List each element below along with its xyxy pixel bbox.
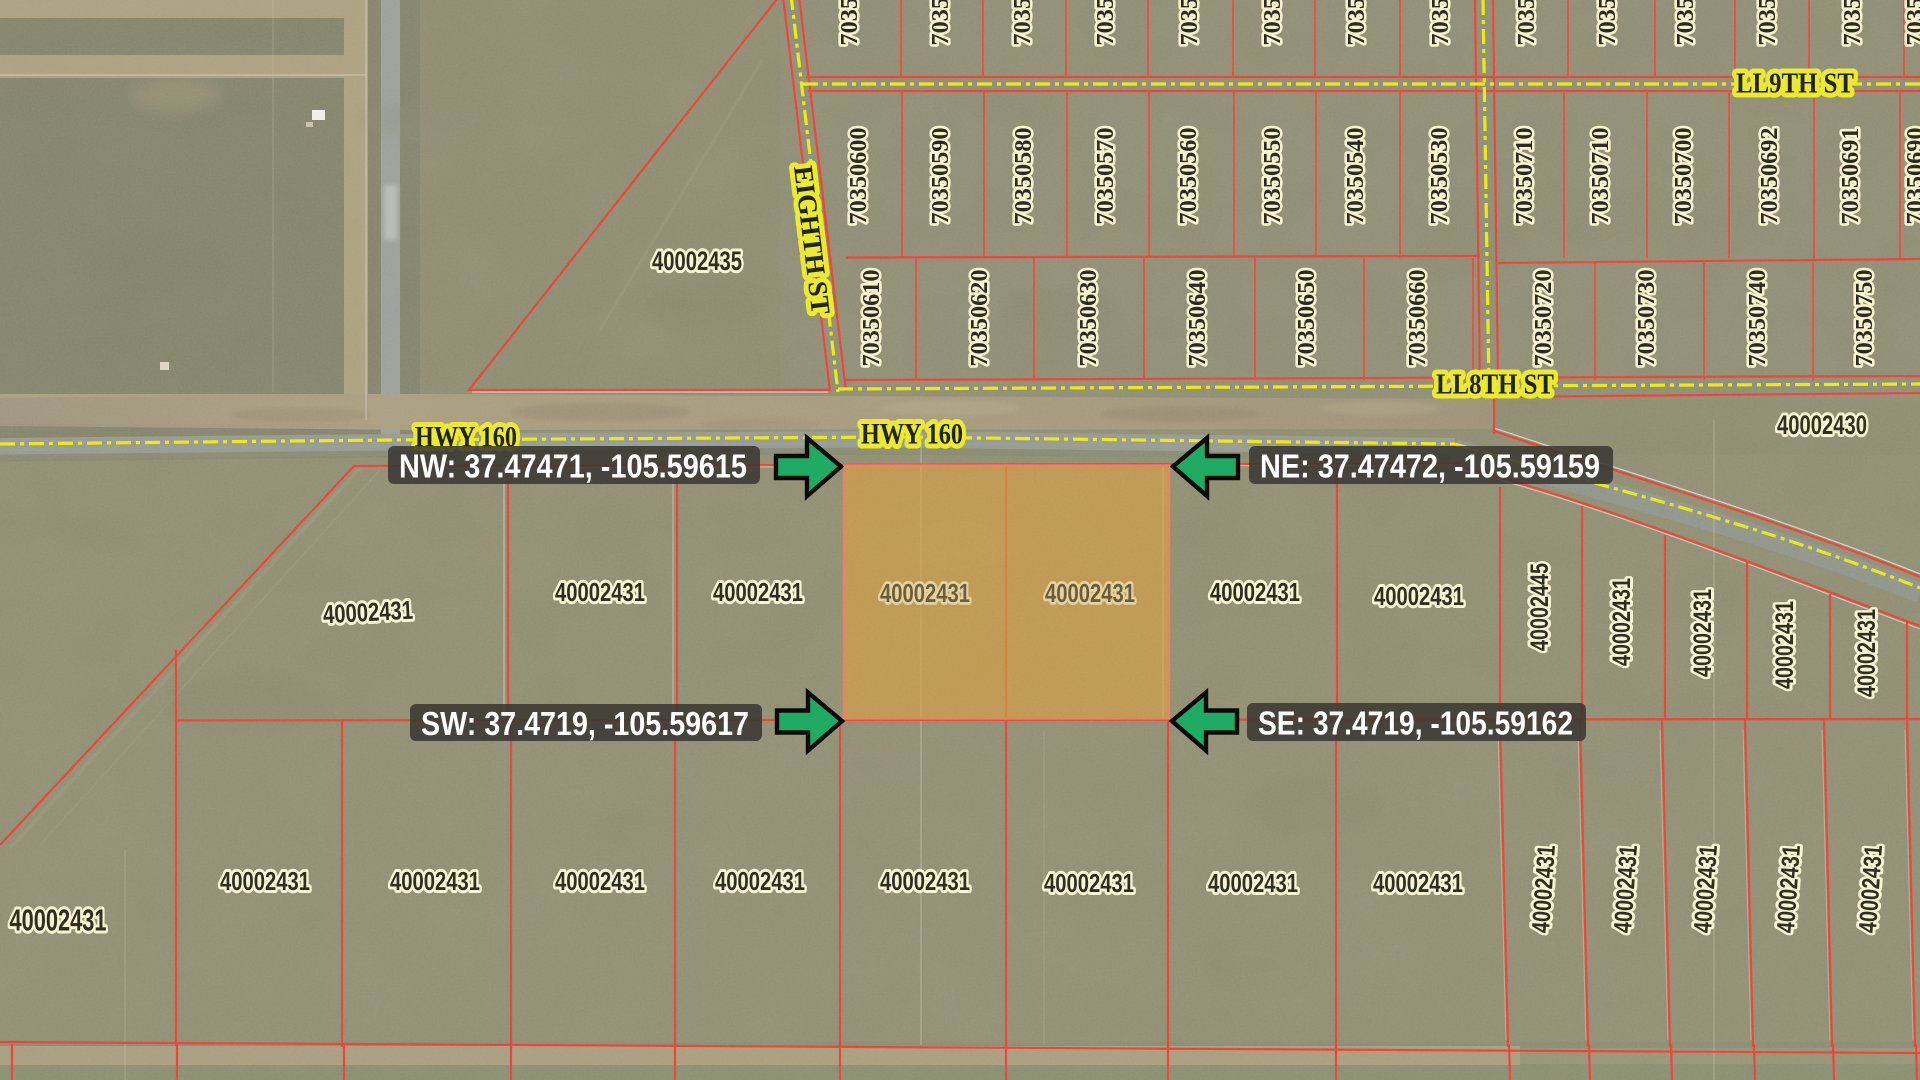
svg-text:NW: 37.47471, -105.59615: NW: 37.47471, -105.59615 xyxy=(399,448,747,485)
svg-text:NE: 37.47472, -105.59159: NE: 37.47472, -105.59159 xyxy=(1260,448,1600,485)
svg-text:SW: 37.4719, -105.59617: SW: 37.4719, -105.59617 xyxy=(421,705,749,742)
svg-text:SE: 37.4719, -105.59162: SE: 37.4719, -105.59162 xyxy=(1258,705,1573,742)
